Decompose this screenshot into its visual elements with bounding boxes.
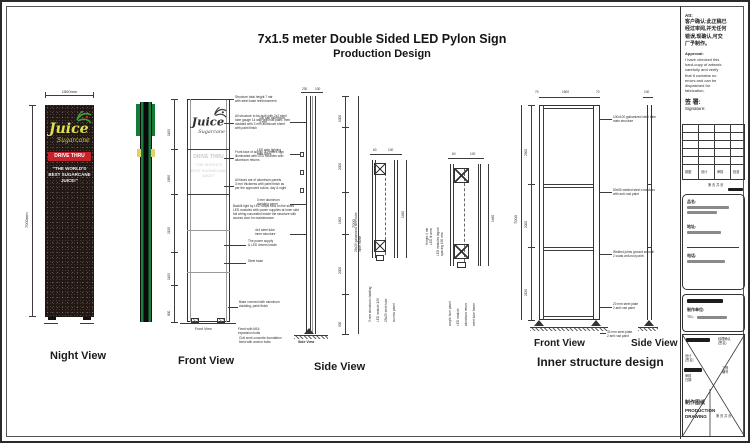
detail-a-note: 25x25 galvanized steel tube inner frame [354, 172, 362, 252]
tb-audit-label: 审核 日期 [685, 374, 691, 382]
detail-a-base [376, 255, 384, 261]
strip-lamp [137, 149, 141, 157]
night-width-dim: 1500mm [45, 89, 94, 94]
dimension-tick [171, 322, 178, 323]
tb-col-label: 设计 [701, 170, 707, 174]
dimension-line [643, 97, 653, 98]
tb-approval-title: Approval: [685, 51, 704, 56]
pole-line [310, 96, 311, 334]
pole-joint [647, 247, 652, 248]
dimension-tick [342, 192, 349, 193]
tb-sign-cn: 签 署: [685, 97, 701, 106]
detail-b-bottom-note: LED module [456, 272, 460, 326]
steel-tube-section [454, 168, 469, 183]
leader-line [290, 154, 300, 155]
frame-crossbar [543, 247, 593, 248]
logo-subword: Sugarcane [198, 129, 225, 135]
night-tagline: "THE WORLD'S BEST SUGARCANE JUICE!" [47, 166, 92, 184]
dimension-line [406, 160, 407, 258]
front-dim-seg: 800 [167, 294, 171, 316]
inner-annotation: 50x50 welded steel crossbars with anti-r… [613, 188, 671, 196]
ground-hatch [638, 328, 658, 331]
dimension-line [488, 164, 489, 266]
tb-drawing-cn: 制作图纸 [685, 400, 705, 407]
base-foot [48, 317, 56, 320]
logo-subword: Sugarcane [57, 137, 90, 144]
leader-line [600, 192, 612, 193]
ground-line [180, 323, 236, 324]
frame-beam [543, 316, 593, 317]
dimension-tick [528, 247, 535, 248]
front-drive-thru-ghost: DRIVE THRU [188, 154, 229, 160]
panel-divider [187, 149, 230, 150]
front-dim-seg: 1100 [167, 258, 171, 280]
field-value-bar [687, 211, 717, 214]
side-dim-seg: 500 [338, 307, 342, 327]
side-top-dim: 100 [315, 87, 320, 91]
detail-b-base [457, 262, 466, 268]
dimension-tick [171, 285, 178, 286]
dimension-tick [342, 127, 349, 128]
dimension-line [44, 323, 58, 324]
leader-line [224, 186, 234, 187]
side-note: 4x4 steel tube inner structure [255, 228, 291, 236]
tb-col-label: 制图 [685, 170, 691, 174]
side-note: Top cap aluminum 3 mm [259, 116, 293, 124]
anchor-plate [217, 318, 225, 323]
dimension-tick [29, 316, 36, 317]
tb-sign-en: Signature: [685, 106, 706, 112]
inner-annotation: 20 mm steel plate 2 anti rust paint [613, 302, 665, 310]
side-dim-seg: 1500 [338, 204, 342, 224]
dimension-line [32, 105, 33, 317]
inner-annotation: 100x100 galvanized steel tube main struc… [613, 115, 671, 123]
detail-b-note: LED modules layout spacing 150 mm [436, 180, 444, 256]
tb-page-note-2: 第 页 共 页 [716, 414, 731, 418]
dimension-line [448, 158, 484, 159]
frame-crossbar [543, 184, 593, 185]
dimension-tick [342, 234, 349, 235]
frame-crossbar [543, 187, 593, 188]
rail-line [478, 164, 479, 266]
annotation: Steel base [248, 259, 288, 263]
leader-line [224, 158, 234, 159]
frame-foot [591, 320, 601, 326]
field-value-bar [687, 231, 721, 234]
side-top-dim: 230 [302, 87, 307, 91]
inner-dim-seg: 2000 [524, 206, 528, 228]
logo-word: Juice [190, 114, 224, 128]
leader-line [600, 254, 612, 255]
tb-cn-approval: 客户确认:此正稿已 经过审阅,并无任何 错误,现确认,可交 厂予制作。 [685, 19, 745, 48]
frame-beam [543, 108, 593, 109]
annotation: The power supply & LED drivers inside [248, 239, 292, 247]
detail-a-bottom-note: access panel [392, 266, 396, 322]
dimension-tick [171, 252, 178, 253]
frame-post-line [543, 105, 544, 320]
leader-line [600, 119, 612, 120]
detail-b-bottom-note: acrylic face panel [448, 272, 452, 326]
table-line [682, 164, 745, 165]
redacted-bar [684, 368, 702, 372]
tb-col-label: 审核 [717, 170, 723, 174]
side-dim-seg: 2000 [338, 254, 342, 274]
dimension-tick [171, 194, 178, 195]
tb-drawing-en: PRODUCTION DRAWING [685, 408, 715, 420]
panel-divider [187, 272, 230, 273]
annotation: All faces are of aluminum panels 3 mm th… [235, 178, 307, 190]
tb-design-label: 设计 (签名) [685, 354, 694, 362]
side-caption: Side View [298, 340, 314, 345]
inner-frame-outline [539, 105, 600, 320]
steel-tube-section [374, 240, 386, 252]
logo-word: Juice [47, 121, 89, 137]
ground-hatch [294, 336, 328, 339]
field-value-bar [687, 206, 729, 209]
annotation: Structure total height 7 mtr with steel … [235, 95, 305, 103]
pole-joint [647, 184, 652, 185]
side-view-label: Side View [314, 361, 365, 373]
pole-base [644, 320, 654, 326]
inner-annotation: Welded joints ground smooth 2 coats anti… [613, 250, 671, 258]
strip-side-view [140, 102, 152, 322]
tb-field-label: 地址: [687, 224, 696, 229]
detail-a-bottom-note: 3 mm aluminum cladding [368, 266, 372, 322]
detail-b-dim: 100 [470, 152, 475, 156]
leader-line [290, 204, 306, 205]
field-value-bar [697, 316, 727, 319]
inner-side-label: Side View [631, 338, 678, 349]
detail-b-dim: 60 [452, 152, 456, 156]
dimension-tick [528, 184, 535, 185]
annotation: Base covered with aluminum cladding, pai… [239, 300, 297, 308]
brand-logo-outline: Juice Sugarcane [190, 102, 227, 144]
dimension-line [370, 154, 402, 155]
redacted-bar [728, 188, 743, 191]
leader-line [216, 99, 234, 100]
side-dim-seg: 2000 [338, 150, 342, 170]
drive-thru-band: DRIVE THRU [48, 152, 91, 161]
details-mid-note: Height 4 mtr LED lit area [425, 177, 433, 245]
tb-col-label: 批准 [733, 170, 739, 174]
dimension-tick [171, 149, 178, 150]
anchor-plate [191, 318, 199, 323]
bracket [300, 188, 304, 193]
tb-proj-label: 工程 编号 [722, 366, 728, 374]
tb-field-label: 品名: [687, 199, 696, 204]
tb-att: Att: [685, 13, 693, 19]
frame-foot [534, 320, 544, 326]
table-line [682, 132, 745, 133]
detail-a-dim: 60 [373, 148, 377, 152]
base-foot [83, 317, 91, 320]
dimension-line [80, 323, 94, 324]
detail-a-bottom-note: LED module 12V [376, 266, 380, 322]
panel-divider [187, 194, 230, 195]
inner-top-dim: 70 [596, 90, 600, 94]
dimension-tick [342, 294, 349, 295]
steel-tube-section [454, 244, 469, 259]
side-pole [306, 96, 316, 334]
front-dim-seg: 2150 [167, 212, 171, 234]
side-note: 3 mm aluminum cladding panel [257, 198, 291, 206]
strip-lamp [151, 149, 155, 157]
side-dim-seg: 1000 [338, 102, 342, 122]
inner-top-dim: 1500 [562, 90, 569, 94]
tb-mgr-label: 经理确认 (签名) [718, 337, 731, 345]
leader-line [290, 234, 306, 235]
front-base-note: Fixed with M16 expansion bolts [238, 327, 282, 335]
front-view-label: Front View [178, 355, 234, 367]
steel-tube-section [374, 163, 386, 175]
frame-crossbar [543, 250, 593, 251]
night-height-dim: 7000mm [24, 192, 29, 228]
inner-dim-seg: 2150 [524, 274, 528, 296]
dimension-line [539, 97, 600, 98]
dimension-tick [528, 105, 535, 106]
ground-hatch [530, 328, 608, 331]
table-line [682, 156, 745, 157]
drawing-sheet: 7x1.5 meter Double Sided LED Pylon Sign … [0, 0, 750, 443]
leader-line [228, 307, 238, 308]
dimension-tick [342, 96, 349, 97]
titleblock-border [680, 6, 681, 439]
inner-side-top-dim: 100 [644, 90, 649, 94]
dimension-tick [29, 105, 36, 106]
front-caption: Front View [195, 327, 212, 332]
detail-a-height: 1460 [401, 198, 405, 218]
rail-line [394, 160, 395, 258]
bracket [300, 170, 304, 175]
inner-dim-seg: 2500 [524, 134, 528, 156]
redacted-bar [687, 299, 723, 303]
inner-top-dim: 70 [535, 90, 539, 94]
dimension-line [174, 99, 175, 322]
dimension-line [345, 96, 346, 334]
pole-base [304, 328, 314, 334]
brand-logo: Juice Sugarcane [47, 111, 92, 149]
front-dim-seg: 1850 [167, 160, 171, 182]
annotation: Civil work concrete foundation fixed wit… [239, 336, 297, 344]
leader-line [600, 333, 606, 334]
tb-page-note: 第 页 共 页 [708, 183, 723, 187]
dimension-line [45, 95, 94, 96]
side-note: LED strip lighting both sides [257, 148, 291, 156]
field-value-bar [687, 260, 725, 263]
panel-divider [187, 230, 230, 231]
table-line [682, 148, 745, 149]
detail-a-bottom-note: 25x25 steel tube [384, 266, 388, 322]
frame-main-post [593, 105, 600, 320]
dimension-line [301, 92, 323, 93]
detail-b-bottom-note: aluminum return [464, 272, 468, 326]
tb-maker-label: 制作单位: [687, 307, 704, 312]
detail-b-bottom-note: steel tube frame [472, 272, 476, 326]
table-line [682, 140, 745, 141]
sheet-title: 7x1.5 meter Double Sided LED Pylon Sign [217, 32, 547, 46]
tb-approval-body: I have checked this hard-copy of artwork… [685, 57, 743, 93]
front-tagline-ghost: "THE WORLD'S BEST SUGARCANE JUICE!" [188, 163, 229, 180]
dimension-tick [342, 334, 349, 335]
inner-overall-dim: 7000 [513, 200, 518, 224]
night-view-label: Night View [50, 350, 106, 362]
sheet-subtitle: Production Design [217, 48, 547, 60]
tb-x-grid [682, 334, 745, 437]
detail-b-height: 1460 [491, 202, 495, 222]
bracket [300, 152, 304, 157]
dimension-line [531, 105, 532, 320]
detail-a-dim: 100 [388, 148, 393, 152]
dimension-tick [171, 99, 178, 100]
leader-line [224, 123, 234, 124]
night-pylon: Juice Sugarcane DRIVE THRU "THE WORLD'S … [45, 105, 94, 317]
inner-structure-label: Inner structure design [537, 355, 664, 369]
pole-line [312, 96, 313, 334]
front-dim-seg: 1100 [167, 114, 171, 136]
redacted-bar [686, 338, 710, 342]
field-divider [687, 247, 739, 248]
leader-line [224, 245, 246, 246]
dimension-line [521, 105, 522, 320]
inner-front-label: Front View [534, 338, 585, 349]
tb-field-label: 电话: [687, 253, 696, 258]
leader-line [224, 263, 246, 264]
leader-line [600, 307, 612, 308]
inner-side-pole [647, 105, 652, 320]
tb-tel-label: TEL: [687, 315, 694, 320]
